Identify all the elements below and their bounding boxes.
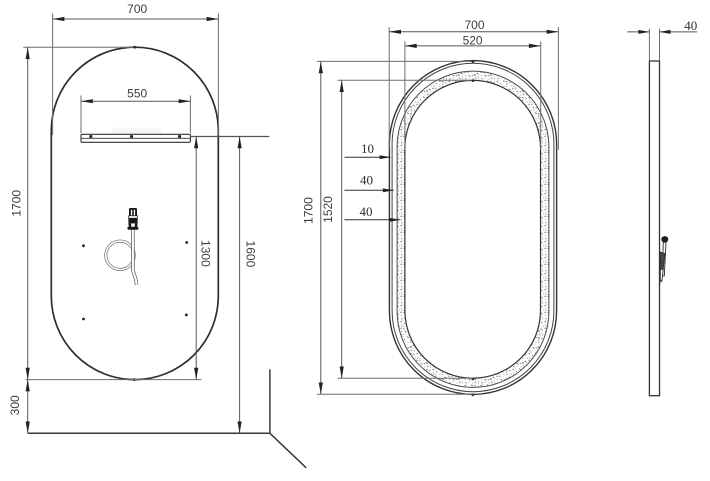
- svg-text:700: 700: [127, 2, 147, 16]
- svg-text:1700: 1700: [9, 190, 23, 217]
- svg-text:700: 700: [464, 18, 484, 32]
- svg-text:300: 300: [8, 395, 22, 415]
- svg-text:1300: 1300: [198, 240, 212, 267]
- svg-text:10: 10: [361, 141, 374, 156]
- svg-text:40: 40: [360, 172, 373, 187]
- svg-text:1700: 1700: [302, 197, 316, 224]
- svg-text:550: 550: [127, 86, 147, 100]
- svg-text:40: 40: [684, 18, 697, 33]
- svg-text:1600: 1600: [243, 241, 257, 268]
- svg-text:1520: 1520: [321, 196, 335, 223]
- svg-text:40: 40: [360, 204, 373, 219]
- svg-text:520: 520: [463, 33, 483, 47]
